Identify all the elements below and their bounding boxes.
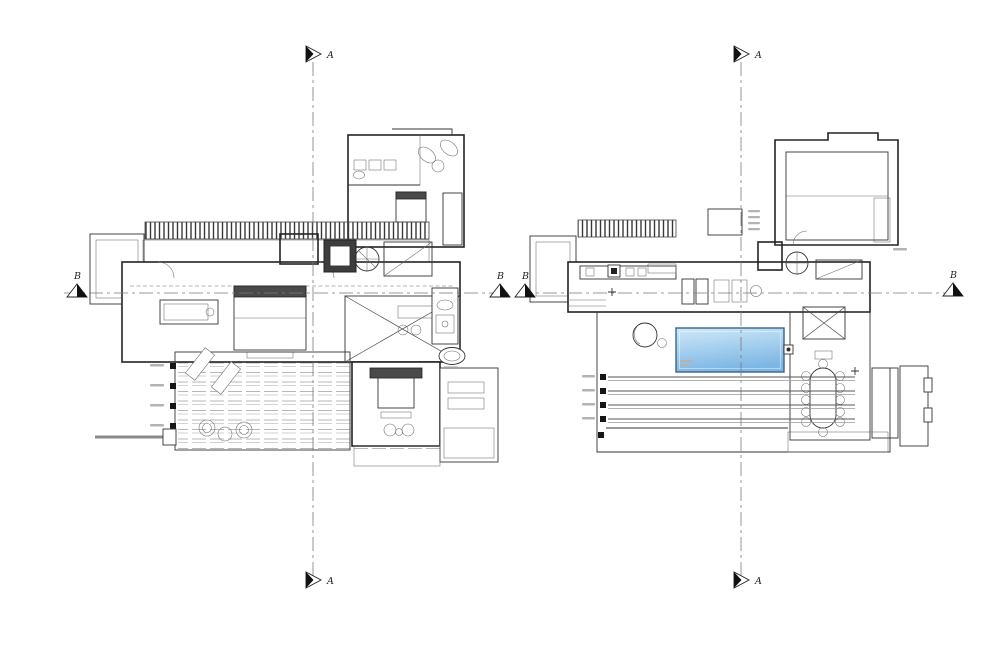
section-marker-a-bottom-left: A: [306, 572, 334, 588]
spiral-stair: [355, 247, 379, 271]
svg-text:B: B: [949, 270, 957, 281]
floor-plan-drawing: A A A A B B: [0, 0, 1000, 666]
section-marker-b-far-left: B: [67, 271, 87, 297]
svg-text:A: A: [326, 576, 334, 587]
section-marker-b-far-right: B: [943, 270, 963, 296]
survey-cross: [851, 367, 859, 375]
right-plan: [530, 133, 932, 452]
svg-text:A: A: [754, 576, 762, 587]
svg-text:B: B: [496, 271, 504, 282]
section-marker-a-bottom-right: A: [734, 572, 762, 588]
kitchen-counter: [580, 264, 676, 279]
svg-text:B: B: [521, 271, 529, 282]
garage-wing: [775, 133, 907, 251]
round-table: [633, 323, 667, 348]
drawing-canvas: A A A A B B: [0, 0, 1000, 666]
louver-canopy: [578, 220, 676, 237]
spiral-stair: [786, 252, 808, 274]
dining-table: [802, 360, 845, 437]
section-marker-b-right-plan-left: B: [515, 271, 535, 297]
upper-bed: [396, 192, 426, 222]
svg-text:A: A: [326, 50, 334, 61]
annex: [900, 366, 932, 446]
svg-text:B: B: [73, 271, 81, 282]
master-bed: [234, 286, 306, 358]
pool: [676, 328, 793, 372]
garden-stairs: [872, 368, 898, 438]
section-marker-a-top-left: A: [306, 46, 334, 62]
annex: [440, 368, 498, 462]
louver-canopy: [145, 222, 429, 239]
upper-stairs: [708, 209, 760, 235]
section-marker-b-left-plan-right: B: [490, 271, 510, 297]
lower-bedroom: [352, 362, 440, 446]
service-shaft: [324, 240, 356, 272]
svg-text:A: A: [754, 50, 762, 61]
side-table: [815, 351, 832, 359]
section-marker-a-top-right: A: [734, 46, 762, 62]
left-plan: [90, 129, 498, 466]
